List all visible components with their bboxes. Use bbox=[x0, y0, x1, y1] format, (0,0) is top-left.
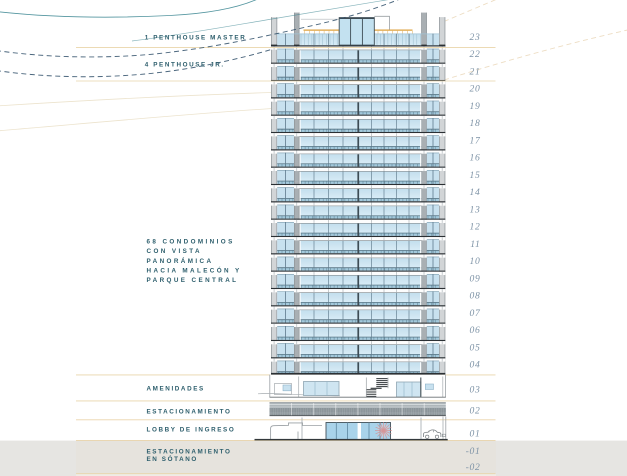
svg-text:16: 16 bbox=[470, 153, 481, 164]
svg-text:12: 12 bbox=[470, 222, 481, 233]
svg-text:ESTACIONAMIENTO: ESTACIONAMIENTO bbox=[147, 448, 232, 455]
svg-text:ESTACIONAMIENTO: ESTACIONAMIENTO bbox=[147, 408, 232, 415]
svg-text:09: 09 bbox=[470, 273, 481, 284]
svg-text:EN SÓTANO: EN SÓTANO bbox=[147, 454, 198, 463]
svg-text:07: 07 bbox=[470, 308, 481, 319]
svg-text:08: 08 bbox=[470, 291, 481, 302]
svg-text:PARQUE CENTRAL: PARQUE CENTRAL bbox=[147, 277, 239, 284]
svg-text:06: 06 bbox=[470, 325, 481, 336]
svg-text:21: 21 bbox=[470, 66, 481, 77]
svg-text:19: 19 bbox=[470, 101, 481, 112]
svg-text:LOBBY DE INGRESO: LOBBY DE INGRESO bbox=[147, 426, 236, 433]
svg-text:4 PENTHOUSE JR.: 4 PENTHOUSE JR. bbox=[145, 62, 225, 69]
svg-text:14: 14 bbox=[470, 187, 481, 198]
svg-text:02: 02 bbox=[470, 406, 481, 417]
svg-text:68 CONDOMINIOS: 68 CONDOMINIOS bbox=[147, 239, 235, 246]
svg-text:10: 10 bbox=[470, 256, 481, 267]
svg-text:13: 13 bbox=[470, 204, 481, 215]
svg-text:11: 11 bbox=[470, 239, 480, 250]
svg-text:05: 05 bbox=[470, 342, 481, 353]
svg-text:18: 18 bbox=[470, 118, 481, 129]
svg-text:03: 03 bbox=[470, 384, 481, 395]
svg-text:17: 17 bbox=[470, 135, 481, 146]
svg-text:HACIA MALECÓN Y: HACIA MALECÓN Y bbox=[147, 265, 242, 274]
svg-text:15: 15 bbox=[470, 170, 481, 181]
svg-text:20: 20 bbox=[470, 84, 481, 95]
svg-text:23: 23 bbox=[470, 32, 481, 43]
svg-text:PANORÁMICA: PANORÁMICA bbox=[147, 256, 214, 265]
svg-text:-02: -02 bbox=[466, 462, 481, 473]
svg-text:CON VISTA: CON VISTA bbox=[147, 248, 202, 255]
svg-text:22: 22 bbox=[470, 49, 481, 60]
svg-text:01: 01 bbox=[470, 428, 481, 439]
svg-text:AMENIDADES: AMENIDADES bbox=[147, 385, 205, 392]
svg-text:04: 04 bbox=[470, 360, 481, 371]
svg-text:1 PENTHOUSE MASTER: 1 PENTHOUSE MASTER bbox=[145, 35, 247, 42]
svg-text:-01: -01 bbox=[466, 446, 481, 457]
